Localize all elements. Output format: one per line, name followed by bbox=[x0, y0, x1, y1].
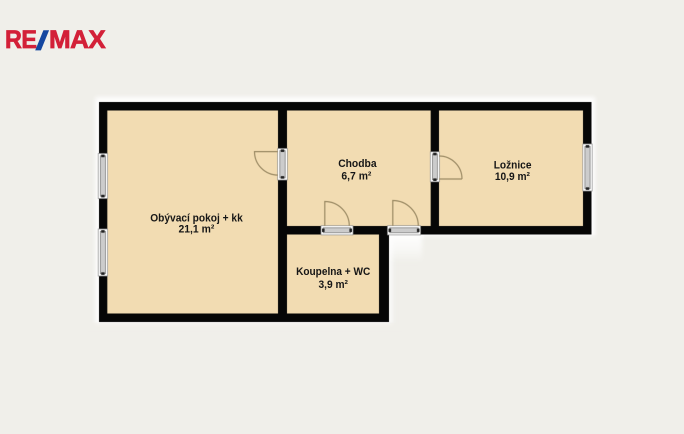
svg-text:Chodba: Chodba bbox=[338, 158, 377, 170]
svg-text:6,7 m²: 6,7 m² bbox=[341, 170, 371, 182]
svg-text:Koupelna + WC: Koupelna + WC bbox=[296, 266, 370, 278]
svg-text:10,9 m²: 10,9 m² bbox=[495, 171, 530, 183]
svg-text:21,1 m²: 21,1 m² bbox=[179, 224, 215, 236]
svg-text:3,9 m²: 3,9 m² bbox=[318, 279, 348, 291]
svg-text:Ložnice: Ložnice bbox=[494, 159, 532, 171]
